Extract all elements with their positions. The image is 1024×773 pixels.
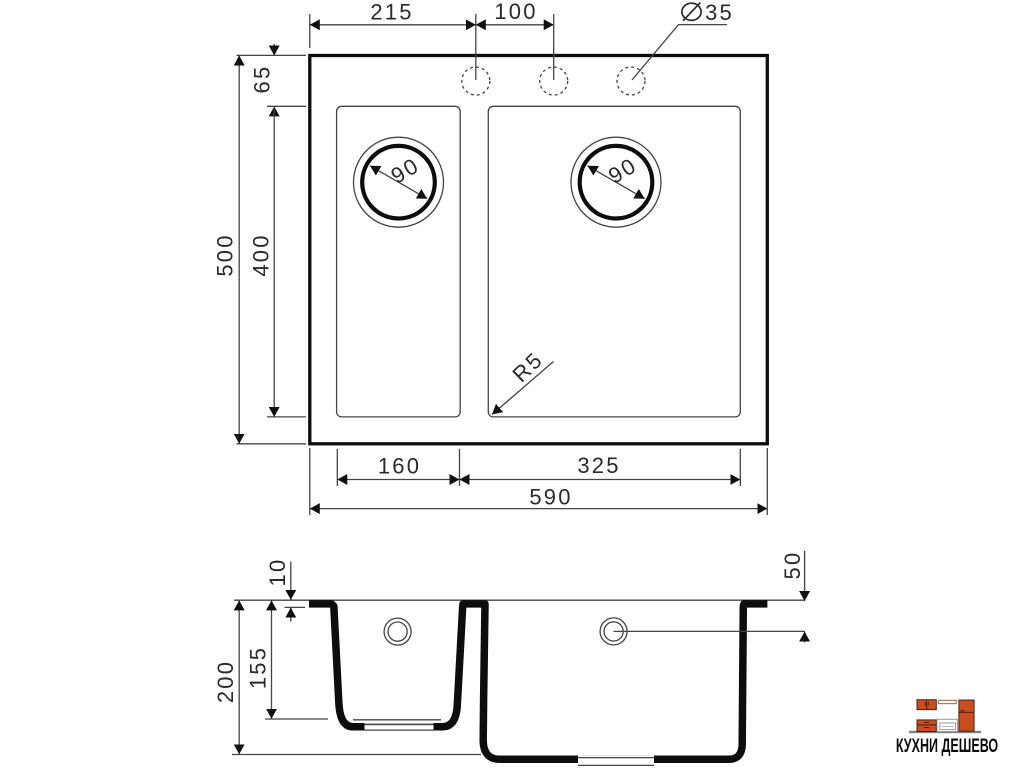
svg-text:325: 325 — [577, 453, 620, 478]
svg-text:500: 500 — [213, 233, 238, 276]
svg-text:200: 200 — [213, 660, 238, 703]
svg-text:160: 160 — [378, 454, 421, 479]
svg-text:10: 10 — [265, 558, 290, 587]
svg-text:50: 50 — [780, 551, 805, 580]
svg-text:100: 100 — [494, 0, 537, 24]
svg-text:400: 400 — [249, 233, 274, 276]
svg-text:КУХНИ ДЕШЕВО: КУХНИ ДЕШЕВО — [896, 735, 998, 756]
svg-text:65: 65 — [250, 65, 275, 94]
svg-text:155: 155 — [245, 646, 270, 689]
svg-text:590: 590 — [529, 485, 572, 510]
svg-text:35: 35 — [705, 0, 734, 25]
svg-text:215: 215 — [370, 0, 413, 25]
